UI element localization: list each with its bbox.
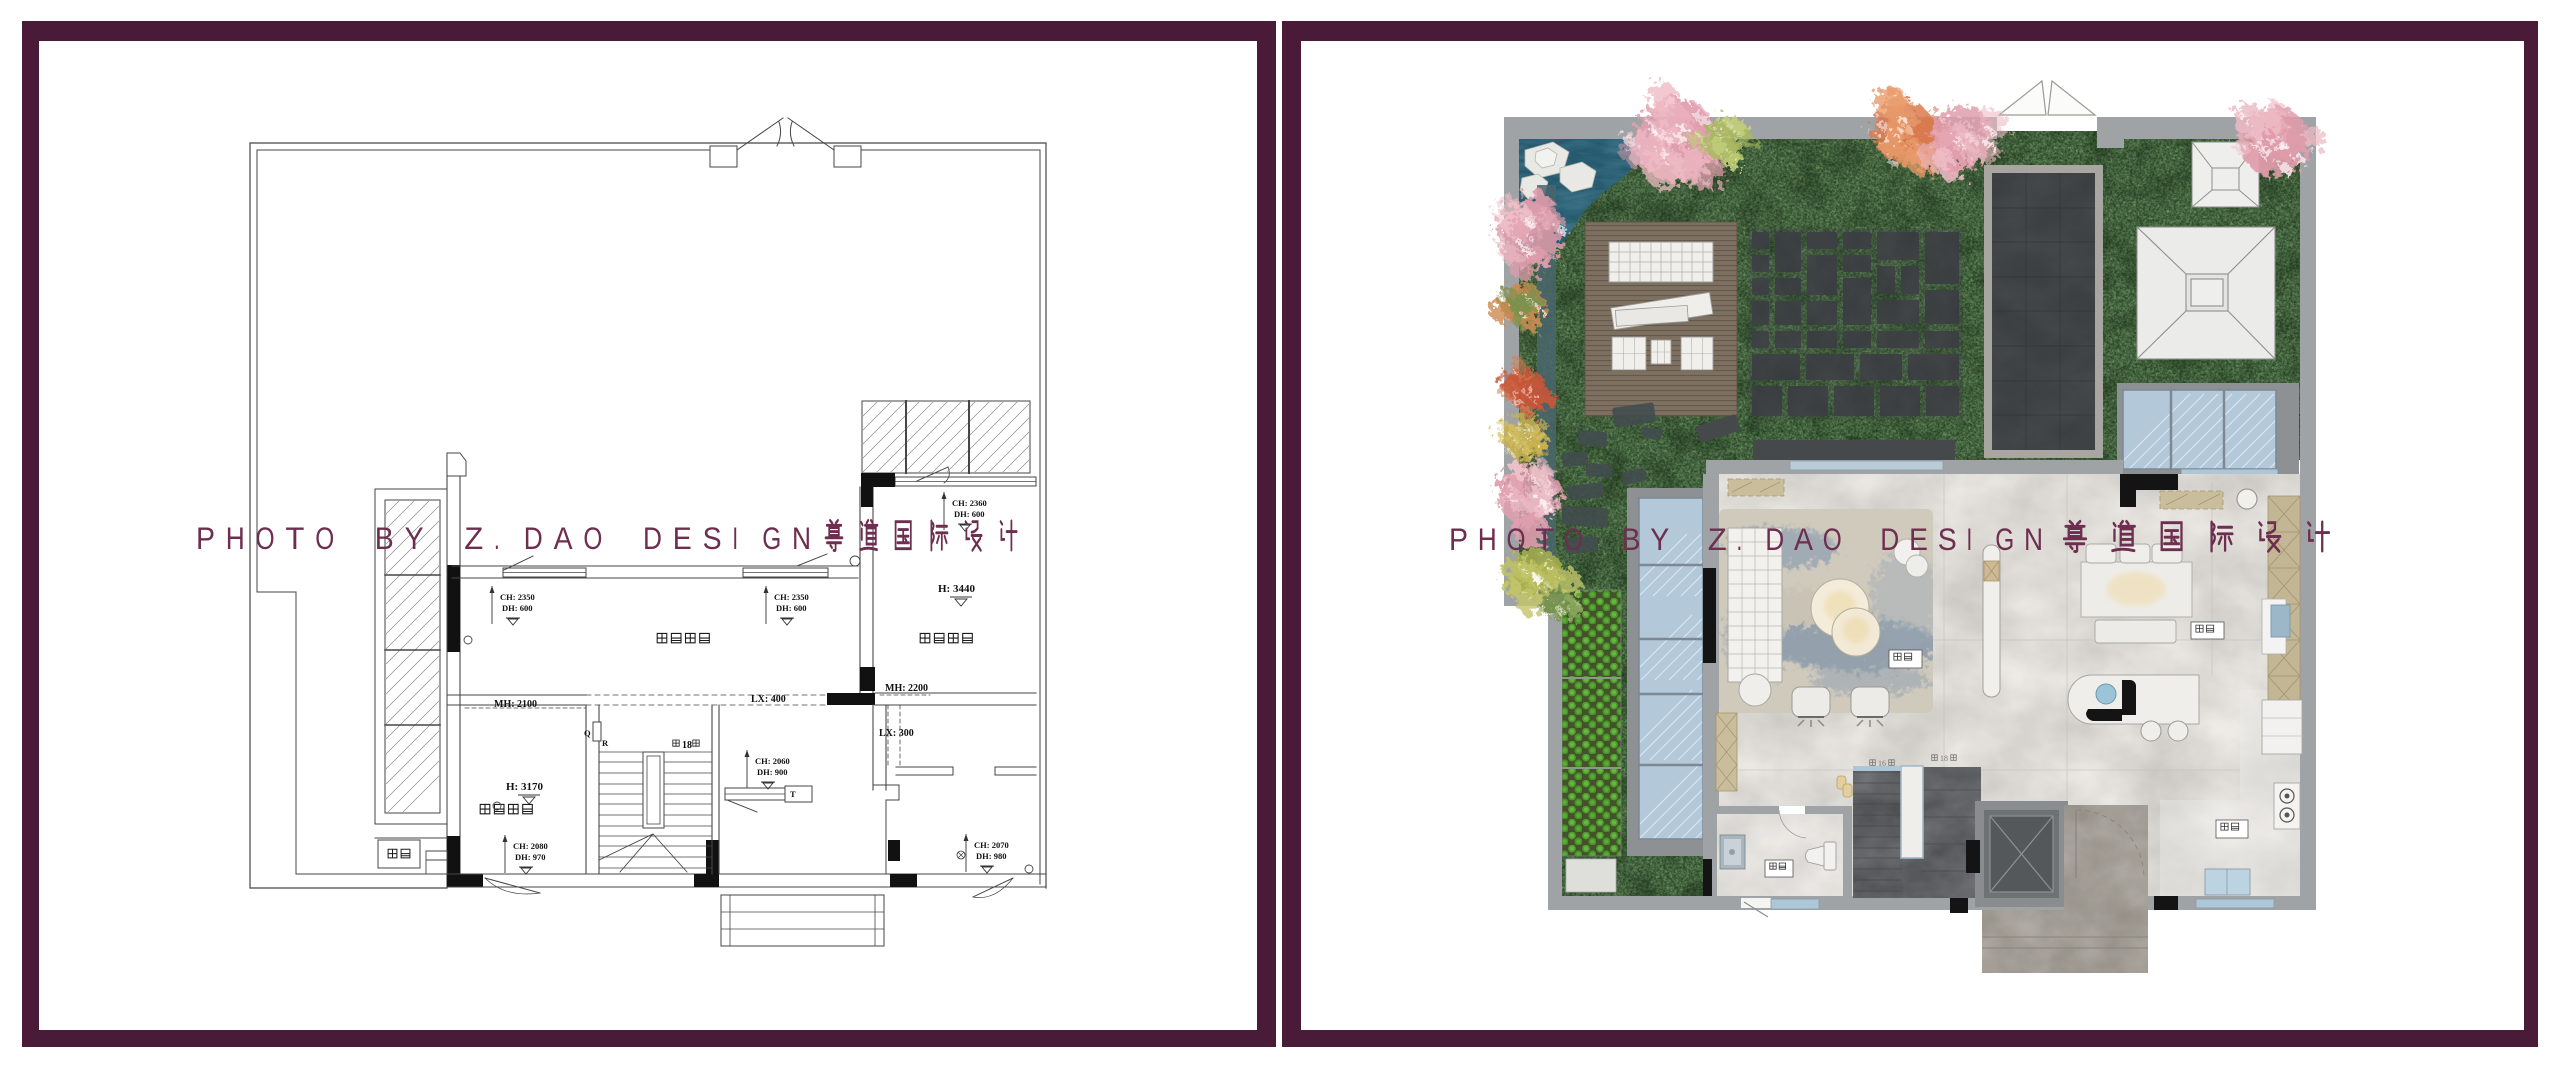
svg-text:O: O <box>256 520 275 556</box>
svg-text:O: O <box>1823 521 1842 557</box>
svg-text:N: N <box>2024 521 2043 557</box>
svg-text:DH: 980: DH: 980 <box>976 851 1006 861</box>
svg-text:O: O <box>315 520 334 556</box>
svg-text:18: 18 <box>1940 754 1948 763</box>
svg-text:D: D <box>1880 521 1899 557</box>
svg-text:A: A <box>554 520 574 556</box>
svg-text:E: E <box>673 520 692 556</box>
svg-text:DH: 600: DH: 600 <box>502 603 532 613</box>
svg-text:D: D <box>524 520 543 556</box>
svg-text:T: T <box>790 789 796 799</box>
svg-text:LX: 300: LX: 300 <box>879 728 914 739</box>
svg-text:P: P <box>196 520 215 556</box>
svg-text:A: A <box>1794 521 1814 557</box>
svg-text:CH: 2360: CH: 2360 <box>952 498 987 508</box>
svg-text:S: S <box>1938 521 1957 557</box>
svg-text:R: R <box>602 738 609 748</box>
svg-text:B: B <box>375 520 394 556</box>
svg-text:DH: 600: DH: 600 <box>776 603 806 613</box>
svg-text:LX: 400: LX: 400 <box>751 694 786 705</box>
svg-text:DH: 600: DH: 600 <box>954 509 984 519</box>
svg-text:H: 3170: H: 3170 <box>506 781 543 793</box>
svg-text:O: O <box>583 520 602 556</box>
svg-text:18: 18 <box>682 740 692 751</box>
svg-text:O: O <box>1507 521 1526 557</box>
svg-text:B: B <box>1622 521 1641 557</box>
svg-text:S: S <box>703 520 722 556</box>
svg-text:H: H <box>1478 521 1497 557</box>
svg-text:D: D <box>643 520 662 556</box>
svg-text:Z: Z <box>464 520 483 556</box>
svg-text:CH: 2060: CH: 2060 <box>755 756 790 766</box>
svg-text:16: 16 <box>1878 759 1886 768</box>
svg-text:T: T <box>285 520 304 556</box>
svg-text:CH: 2350: CH: 2350 <box>500 592 535 602</box>
svg-text:P: P <box>1449 521 1468 557</box>
svg-text:Y: Y <box>405 520 424 556</box>
svg-text:G: G <box>1995 521 2014 557</box>
svg-text:I: I <box>732 520 738 556</box>
svg-text:DH: 900: DH: 900 <box>757 767 787 777</box>
svg-text:H: H <box>226 520 245 556</box>
svg-text:Q: Q <box>584 728 591 738</box>
svg-text:MH: 2200: MH: 2200 <box>885 683 928 694</box>
svg-text:MH: 2100: MH: 2100 <box>494 699 537 710</box>
svg-text:Z: Z <box>1708 521 1727 557</box>
svg-text:N: N <box>792 520 811 556</box>
svg-text:CH: 2070: CH: 2070 <box>974 840 1009 850</box>
svg-text:CH: 2350: CH: 2350 <box>774 592 809 602</box>
svg-text:.: . <box>1737 521 1743 557</box>
svg-text:G: G <box>762 520 781 556</box>
svg-text:Y: Y <box>1650 521 1669 557</box>
svg-text:DH: 970: DH: 970 <box>515 852 545 862</box>
svg-text:.: . <box>494 520 500 556</box>
svg-text:E: E <box>1909 521 1928 557</box>
svg-text:CH: 2080: CH: 2080 <box>513 841 548 851</box>
svg-text:O: O <box>1564 521 1583 557</box>
svg-text:I: I <box>1967 521 1973 557</box>
svg-text:H: 3440: H: 3440 <box>938 583 975 595</box>
svg-text:T: T <box>1535 521 1554 557</box>
svg-text:D: D <box>1765 521 1784 557</box>
